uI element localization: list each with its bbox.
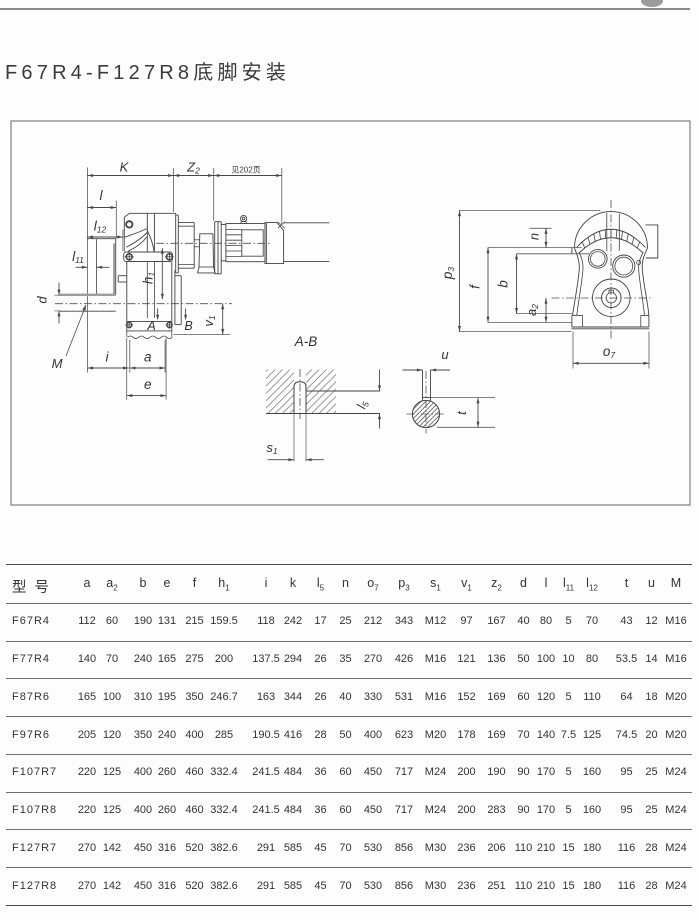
svg-text:l11: l11 xyxy=(72,249,84,265)
svg-text:l12: l12 xyxy=(94,219,107,235)
svg-text:B: B xyxy=(184,319,192,333)
svg-text:i: i xyxy=(106,350,110,365)
svg-text:a2: a2 xyxy=(524,304,540,316)
svg-text:v1: v1 xyxy=(201,315,217,327)
svg-text:l5: l5 xyxy=(353,398,371,410)
svg-text:u: u xyxy=(441,347,448,362)
svg-text:h1: h1 xyxy=(141,272,157,285)
svg-text:见202页: 见202页 xyxy=(231,166,260,175)
svg-text:l: l xyxy=(100,188,104,203)
svg-text:f: f xyxy=(468,284,483,289)
svg-text:M: M xyxy=(52,356,63,371)
svg-text:s1: s1 xyxy=(266,440,278,456)
svg-text:p3: p3 xyxy=(440,267,456,281)
svg-text:b: b xyxy=(496,280,511,288)
svg-text:o7: o7 xyxy=(603,344,616,360)
svg-text:d: d xyxy=(35,296,50,304)
svg-text:A-B: A-B xyxy=(294,334,318,349)
svg-text:Z2: Z2 xyxy=(186,160,200,176)
svg-text:A: A xyxy=(146,319,155,333)
svg-text:e: e xyxy=(144,377,152,392)
svg-text:t: t xyxy=(454,410,469,415)
svg-text:K: K xyxy=(120,160,130,175)
svg-text:n: n xyxy=(527,233,542,240)
svg-text:a: a xyxy=(144,350,152,365)
